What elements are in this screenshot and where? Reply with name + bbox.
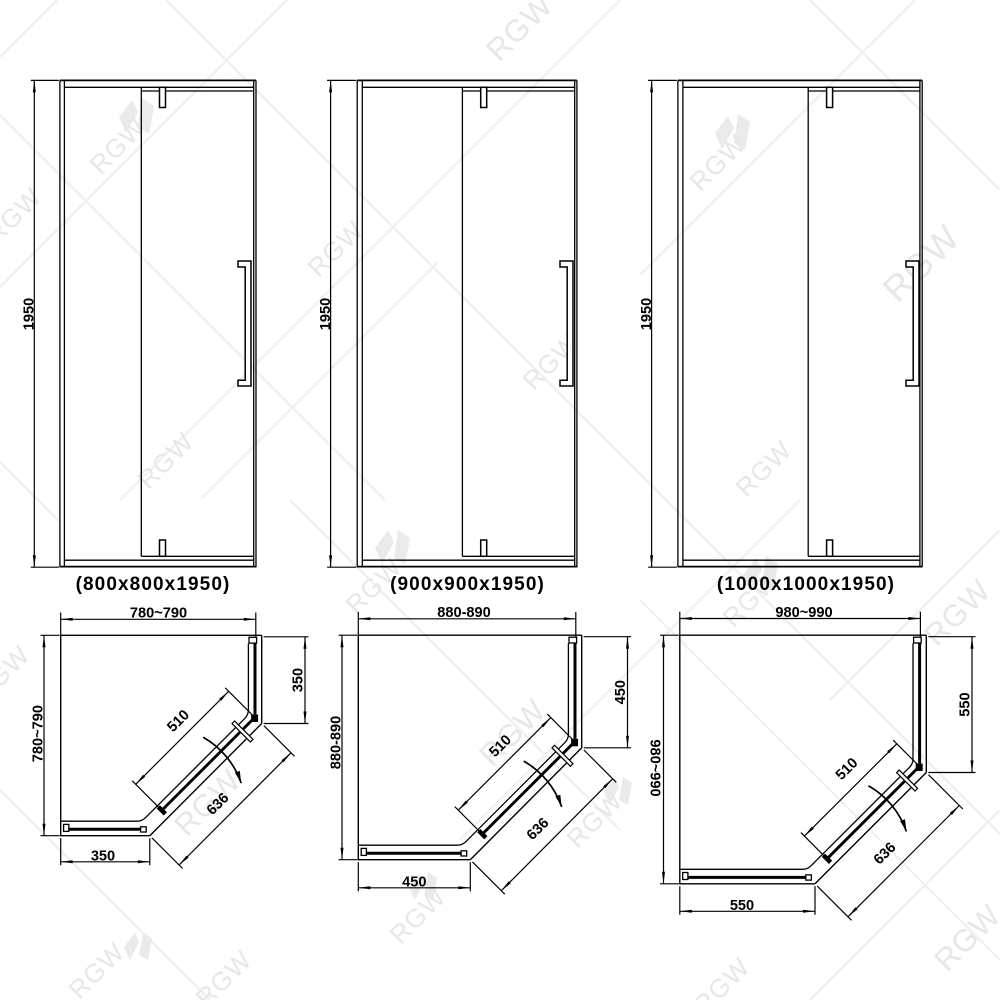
svg-text:780~790: 780~790 bbox=[30, 705, 46, 762]
svg-text:(900x900x1950): (900x900x1950) bbox=[390, 574, 545, 595]
svg-text:980~990: 980~990 bbox=[775, 605, 832, 621]
svg-text:880-890: 880-890 bbox=[437, 605, 491, 621]
svg-text:980~990: 980~990 bbox=[647, 739, 663, 796]
svg-text:1950: 1950 bbox=[318, 298, 334, 330]
svg-text:1950: 1950 bbox=[639, 298, 655, 330]
svg-text:350: 350 bbox=[91, 848, 115, 864]
svg-text:350: 350 bbox=[291, 668, 307, 692]
svg-text:550: 550 bbox=[958, 692, 974, 716]
svg-text:550: 550 bbox=[730, 898, 754, 914]
svg-text:780~790: 780~790 bbox=[130, 606, 187, 622]
svg-text:880-890: 880-890 bbox=[328, 716, 344, 770]
svg-text:1950: 1950 bbox=[22, 298, 38, 330]
svg-text:450: 450 bbox=[613, 680, 629, 704]
svg-text:450: 450 bbox=[402, 874, 426, 890]
svg-text:(800x800x1950): (800x800x1950) bbox=[76, 574, 231, 595]
svg-text:(1000x1000x1950): (1000x1000x1950) bbox=[717, 574, 895, 595]
